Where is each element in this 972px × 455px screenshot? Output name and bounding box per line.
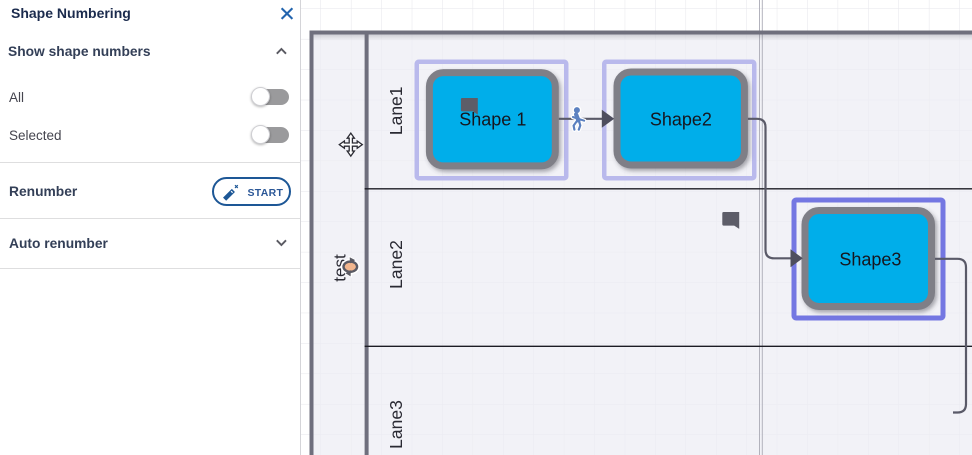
svg-text:Lane3: Lane3 [386,400,406,449]
svg-text:Lane2: Lane2 [386,240,406,289]
svg-text:Shape2: Shape2 [650,110,712,130]
svg-text:Lane1: Lane1 [386,86,406,135]
svg-text:Shape 1: Shape 1 [459,110,526,130]
svg-text:Shape3: Shape3 [839,249,901,269]
